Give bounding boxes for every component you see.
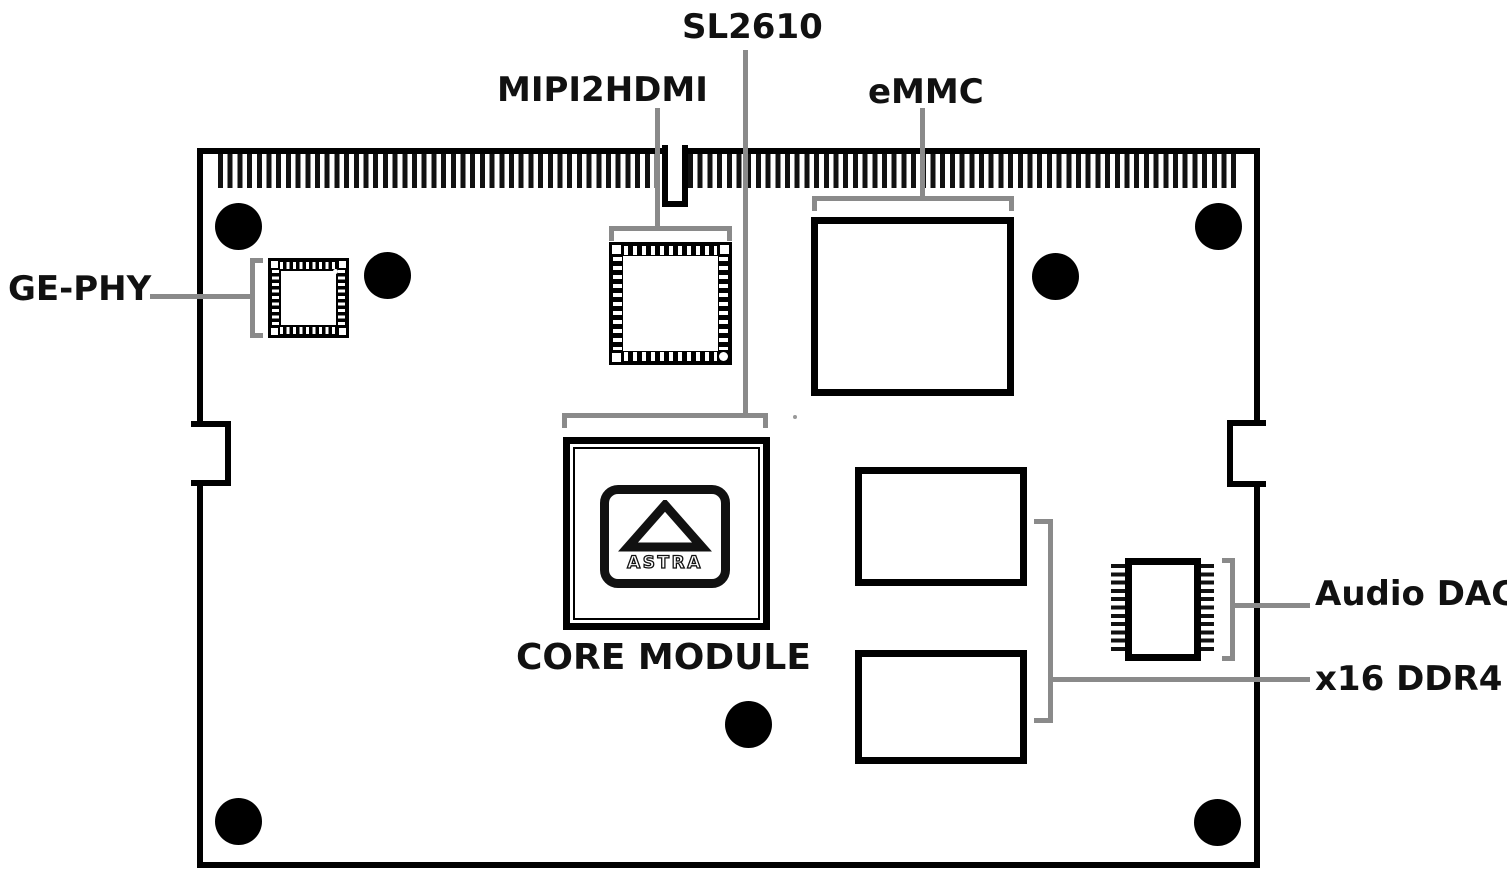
edge-connector-fingers-left [218, 154, 662, 188]
bracket-ge-phy [250, 258, 263, 338]
leader-line-ge-phy [150, 294, 252, 299]
edge-connector-fingers-right [688, 154, 1240, 188]
chip-pins [624, 246, 717, 255]
emmc-chip [811, 217, 1014, 396]
board-side-notch-left [191, 421, 231, 486]
audio-dac-chip [1125, 558, 1201, 661]
ddr4-chip-top [855, 467, 1027, 586]
chip-die [281, 271, 336, 325]
mounting-hole-top-right [1195, 203, 1242, 250]
mounting-hole-near-emmc [1032, 253, 1079, 300]
mipi2hdmi-chip [609, 242, 732, 365]
chip-corner-pad [612, 353, 621, 362]
mounting-hole-near-gephy [364, 252, 411, 299]
leader-line-ddr4 [1048, 677, 1310, 682]
dac-pins-left [1111, 564, 1125, 655]
leader-line-audio-dac [1233, 603, 1310, 608]
ddr4-chip-bottom [855, 650, 1027, 764]
label-core-module: CORE MODULE [516, 640, 811, 676]
bracket-mipi2hdmi [609, 226, 732, 241]
stray-dot [793, 415, 797, 419]
chip-pins [719, 257, 728, 350]
chip-die [623, 256, 718, 351]
mounting-hole-bottom-right [1194, 799, 1241, 846]
bracket-emmc [812, 196, 1014, 211]
astra-logo-text: ASTRA [627, 553, 703, 573]
chip-pins [338, 270, 345, 326]
leader-line-mipi2hdmi [655, 108, 660, 228]
astra-triangle-icon [628, 505, 702, 547]
label-ddr4: x16 DDR4 [1315, 662, 1502, 696]
label-ge-phy: GE-PHY [8, 272, 151, 306]
mounting-hole-top-left [215, 203, 262, 250]
label-emmc: eMMC [868, 75, 984, 109]
chip-corner-pad [271, 261, 278, 268]
chip-corner-pad [612, 245, 621, 254]
bracket-ddr4 [1034, 519, 1053, 723]
leader-line-sl2610 [743, 50, 748, 415]
core-module-soc: ASTRA [600, 485, 730, 588]
mounting-hole-bottom-left [215, 798, 262, 845]
edge-connector-key-notch [662, 145, 688, 207]
chip-pins [613, 257, 622, 350]
label-mipi2hdmi: MIPI2HDMI [497, 73, 708, 107]
chip-pins [624, 352, 717, 361]
bracket-audio-dac [1222, 558, 1235, 661]
chip-corner-pad [720, 245, 729, 254]
chip-corner-pad [339, 261, 346, 268]
label-audio-dac: Audio DAC [1315, 577, 1507, 611]
chip-pins [280, 262, 337, 269]
chip-corner-pad [339, 328, 346, 335]
dac-pins-right [1200, 564, 1214, 655]
board-side-notch-right [1227, 420, 1266, 487]
pin1-marker [719, 352, 728, 361]
label-sl2610: SL2610 [682, 10, 823, 44]
chip-pins [280, 327, 337, 334]
pcb-block-diagram: ASTRA SL2610 MIPI2HDMI eMMC GE-PHY CORE … [0, 0, 1507, 880]
mounting-hole-bottom-center [725, 701, 772, 748]
bracket-core-module [562, 413, 768, 428]
chip-pins [272, 270, 279, 326]
ge-phy-chip [268, 258, 349, 338]
chip-corner-pad [271, 328, 278, 335]
astra-logo: ASTRA [613, 500, 717, 574]
leader-line-emmc [920, 108, 925, 200]
